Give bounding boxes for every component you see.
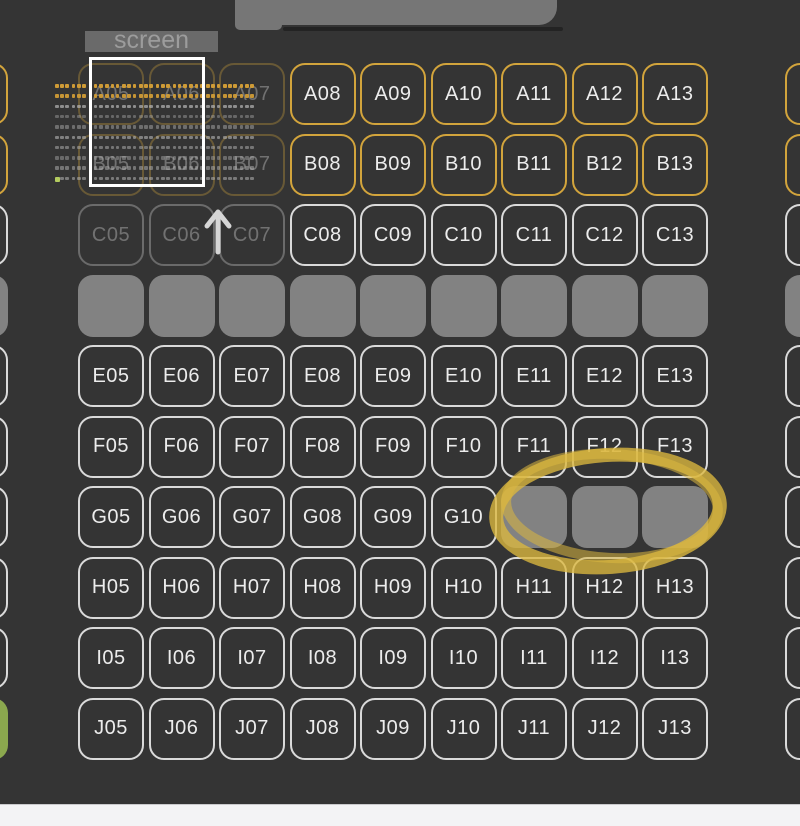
minimap-seat-dot — [217, 105, 221, 109]
top-sheet-tab — [235, 0, 557, 25]
minimap-seat-dot — [55, 84, 59, 88]
seat-G13 — [642, 486, 708, 548]
minimap-seat-dot — [240, 125, 244, 129]
minimap-seat-dot — [211, 125, 215, 129]
seat-E04[interactable] — [0, 345, 8, 407]
minimap-seat-dot — [206, 94, 210, 98]
seat-H09[interactable]: H09 — [360, 557, 426, 619]
seat-H06[interactable]: H06 — [149, 557, 215, 619]
seat-I12[interactable]: I12 — [572, 627, 638, 689]
minimap-seat-dot — [206, 115, 210, 119]
minimap-seat-dot — [77, 177, 81, 181]
minimap-seat-dot — [72, 84, 76, 88]
minimap-seat-dot — [228, 146, 232, 150]
minimap-seat-dot — [60, 136, 64, 140]
minimap-seat-dot — [60, 84, 64, 88]
seat-F06[interactable]: F06 — [149, 416, 215, 478]
minimap-seat-dot — [72, 105, 76, 109]
minimap-seat-dot — [55, 94, 59, 98]
minimap-seat-dot — [55, 125, 59, 129]
seat-A08[interactable]: A08 — [290, 63, 356, 125]
minimap-seat-dot — [223, 146, 227, 150]
minimap-seat-dot — [223, 136, 227, 140]
minimap-seat-dot — [82, 115, 86, 119]
minimap-seat-dot — [217, 166, 221, 170]
minimap-seat-dot — [223, 105, 227, 109]
seat-H05[interactable]: H05 — [78, 557, 144, 619]
minimap-seat-dot — [65, 156, 69, 160]
seat-A13[interactable]: A13 — [642, 63, 708, 125]
minimap-seat-dot — [245, 156, 249, 160]
screen-label-bar: screen — [85, 31, 218, 52]
seat-H13[interactable]: H13 — [642, 557, 708, 619]
seat-A09[interactable]: A09 — [360, 63, 426, 125]
seat-B13[interactable]: B13 — [642, 134, 708, 196]
seat-D07 — [219, 275, 285, 337]
seat-C13[interactable]: C13 — [642, 204, 708, 266]
minimap-seat-dot — [211, 166, 215, 170]
minimap-seat-dot — [233, 105, 237, 109]
minimap-seat-dot — [245, 105, 249, 109]
minimap-seat-dot — [240, 156, 244, 160]
seat-J10[interactable]: J10 — [431, 698, 497, 760]
minimap-seat-dot — [233, 156, 237, 160]
minimap-seat-dot — [65, 94, 69, 98]
minimap-seat-dot — [77, 125, 81, 129]
seat-A10[interactable]: A10 — [431, 63, 497, 125]
minimap-seat-dot — [77, 156, 81, 160]
seat-J05[interactable]: J05 — [78, 698, 144, 760]
seat-I06[interactable]: I06 — [149, 627, 215, 689]
seat-G04[interactable] — [0, 486, 8, 548]
seat-J08[interactable]: J08 — [290, 698, 356, 760]
minimap-seat-dot — [77, 136, 81, 140]
minimap-seat-dot — [228, 136, 232, 140]
minimap-seat-dot — [77, 105, 81, 109]
seat-D14 — [785, 275, 800, 337]
minimap-seat-dot — [72, 94, 76, 98]
minimap-seat-dot — [217, 115, 221, 119]
seat-G07[interactable]: G07 — [219, 486, 285, 548]
seat-E10[interactable]: E10 — [431, 345, 497, 407]
seat-A11[interactable]: A11 — [501, 63, 567, 125]
seat-I09[interactable]: I09 — [360, 627, 426, 689]
minimap-seat-dot — [206, 84, 210, 88]
seat-D06 — [149, 275, 215, 337]
seat-J12[interactable]: J12 — [572, 698, 638, 760]
seat-G12 — [572, 486, 638, 548]
seat-E13[interactable]: E13 — [642, 345, 708, 407]
minimap-seat-dot — [217, 84, 221, 88]
minimap-seat-dot — [206, 105, 210, 109]
scroll-up-arrow-icon — [200, 204, 236, 261]
seat-J09[interactable]: J09 — [360, 698, 426, 760]
seat-F11[interactable]: F11 — [501, 416, 567, 478]
seat-I13[interactable]: I13 — [642, 627, 708, 689]
minimap-seat-dot — [72, 177, 76, 181]
seat-I10[interactable]: I10 — [431, 627, 497, 689]
minimap-seat-dot — [217, 156, 221, 160]
minimap-seat-dot — [211, 115, 215, 119]
minimap-seat-dot — [217, 94, 221, 98]
seat-E14[interactable] — [785, 345, 800, 407]
minimap-seat-dot — [233, 115, 237, 119]
seat-D09 — [360, 275, 426, 337]
minimap-seat-dot — [250, 94, 254, 98]
minimap-seat-dot — [245, 84, 249, 88]
minimap-seat-dot — [60, 94, 64, 98]
minimap-seat-dot — [82, 156, 86, 160]
minimap-seat-dot — [60, 146, 64, 150]
minimap-seat-dot — [65, 146, 69, 150]
seat-E12[interactable]: E12 — [572, 345, 638, 407]
minimap-seat-dot — [72, 156, 76, 160]
seat-C08[interactable]: C08 — [290, 204, 356, 266]
seat-C05[interactable]: C05 — [78, 204, 144, 266]
minimap-seat-dot — [82, 136, 86, 140]
minimap-seat-dot — [82, 146, 86, 150]
minimap-seat-dot — [240, 94, 244, 98]
minimap-seat-dot — [223, 166, 227, 170]
seat-picker-screen: A05A06A07A08A09A10A11A12A13B05B06B07B08B… — [0, 0, 800, 826]
minimap-seat-dot — [233, 177, 237, 181]
minimap-seat-dot — [245, 177, 249, 181]
minimap-seat-dot — [72, 136, 76, 140]
minimap-seat-dot — [240, 115, 244, 119]
top-sheet-shadow — [283, 27, 563, 31]
seat-J13[interactable]: J13 — [642, 698, 708, 760]
seat-D08 — [290, 275, 356, 337]
seat-B10[interactable]: B10 — [431, 134, 497, 196]
seat-F12[interactable]: F12 — [572, 416, 638, 478]
minimap-seat-dot — [77, 146, 81, 150]
seat-J14[interactable] — [785, 698, 800, 760]
minimap-seat-dot — [60, 156, 64, 160]
minimap-seat-dot — [82, 125, 86, 129]
seat-C10[interactable]: C10 — [431, 204, 497, 266]
seat-F04[interactable] — [0, 416, 8, 478]
seat-E05[interactable]: E05 — [78, 345, 144, 407]
minimap-seat-dot — [72, 166, 76, 170]
minimap-seat-dot — [245, 115, 249, 119]
minimap-seat-dot — [228, 94, 232, 98]
minimap-seat-dot — [65, 177, 69, 181]
minimap-seat-dot — [233, 166, 237, 170]
seat-F09[interactable]: F09 — [360, 416, 426, 478]
minimap-seat-dot — [228, 177, 232, 181]
seat-H14[interactable] — [785, 557, 800, 619]
minimap-seat-dot — [250, 146, 254, 150]
minimap-seat-dot — [82, 105, 86, 109]
seat-G09[interactable]: G09 — [360, 486, 426, 548]
seat-B08[interactable]: B08 — [290, 134, 356, 196]
seat-F13[interactable]: F13 — [642, 416, 708, 478]
minimap-viewport[interactable] — [89, 57, 205, 187]
seat-E07[interactable]: E07 — [219, 345, 285, 407]
minimap-seat-dot — [211, 94, 215, 98]
seat-F07[interactable]: F07 — [219, 416, 285, 478]
minimap-seat-dot — [65, 84, 69, 88]
minimap-seat-dot — [250, 125, 254, 129]
minimap-seat-dot — [77, 115, 81, 119]
seat-I04[interactable] — [0, 627, 8, 689]
minimap-seat-dot — [217, 177, 221, 181]
minimap-seat-dot — [65, 115, 69, 119]
minimap-seat-dot — [228, 125, 232, 129]
minimap-seat-dot — [250, 177, 254, 181]
minimap-seat-dot — [211, 146, 215, 150]
minimap-seat-dot — [60, 166, 64, 170]
minimap-seat-dot — [206, 125, 210, 129]
minimap-seat-dot — [211, 177, 215, 181]
minimap-seat-dot — [206, 177, 210, 181]
seat-G06[interactable]: G06 — [149, 486, 215, 548]
seat-J07[interactable]: J07 — [219, 698, 285, 760]
minimap-seat-dot — [206, 156, 210, 160]
minimap-seat-dot — [245, 136, 249, 140]
seat-H07[interactable]: H07 — [219, 557, 285, 619]
minimap-seat-dot — [72, 115, 76, 119]
seat-F14[interactable] — [785, 416, 800, 478]
minimap-seat-dot — [228, 115, 232, 119]
seat-D05 — [78, 275, 144, 337]
seat-C12[interactable]: C12 — [572, 204, 638, 266]
seat-I08[interactable]: I08 — [290, 627, 356, 689]
seat-D10 — [431, 275, 497, 337]
seat-J04[interactable] — [0, 698, 8, 760]
minimap-seat-dot — [77, 84, 81, 88]
minimap-seat-dot — [240, 84, 244, 88]
seat-D11 — [501, 275, 567, 337]
minimap-seat-dot — [245, 125, 249, 129]
minimap-seat-dot — [223, 177, 227, 181]
minimap-seat-dot — [228, 156, 232, 160]
minimap-seat-dot — [211, 84, 215, 88]
minimap-seat-dot — [60, 177, 64, 181]
seat-D13 — [642, 275, 708, 337]
seat-H12[interactable]: H12 — [572, 557, 638, 619]
seat-F05[interactable]: F05 — [78, 416, 144, 478]
minimap-seat-dot — [223, 84, 227, 88]
seat-H11[interactable]: H11 — [501, 557, 567, 619]
minimap-seat-dot — [55, 146, 59, 150]
minimap-seat-dot — [245, 94, 249, 98]
seat-H10[interactable]: H10 — [431, 557, 497, 619]
minimap-seat-dot — [250, 166, 254, 170]
minimap-seat-dot — [72, 125, 76, 129]
seat-E11[interactable]: E11 — [501, 345, 567, 407]
seat-B14[interactable] — [785, 134, 800, 196]
minimap-seat-dot — [240, 136, 244, 140]
minimap-seat-dot — [228, 84, 232, 88]
minimap-seat-dot — [223, 156, 227, 160]
minimap-seat-dot — [240, 105, 244, 109]
seat-F08[interactable]: F08 — [290, 416, 356, 478]
seat-E06[interactable]: E06 — [149, 345, 215, 407]
seat-D12 — [572, 275, 638, 337]
minimap-seat-dot — [240, 166, 244, 170]
seat-G05[interactable]: G05 — [78, 486, 144, 548]
minimap-seat-dot — [206, 136, 210, 140]
minimap-seat-dot — [228, 166, 232, 170]
minimap-seat-dot — [250, 156, 254, 160]
minimap-seat-dot — [82, 177, 86, 181]
seat-E08[interactable]: E08 — [290, 345, 356, 407]
minimap-seat-dot — [55, 105, 59, 109]
seat-G08[interactable]: G08 — [290, 486, 356, 548]
seat-I11[interactable]: I11 — [501, 627, 567, 689]
minimap-seat-dot — [60, 105, 64, 109]
minimap-seat-dot — [223, 94, 227, 98]
seat-B12[interactable]: B12 — [572, 134, 638, 196]
minimap-seat-dot — [233, 125, 237, 129]
minimap-seat-dot — [55, 166, 59, 170]
minimap-seat-dot — [60, 115, 64, 119]
minimap-seat-dot — [245, 166, 249, 170]
seat-C04[interactable] — [0, 204, 8, 266]
minimap-seat-dot — [72, 146, 76, 150]
minimap-seat-dot — [82, 94, 86, 98]
seat-I05[interactable]: I05 — [78, 627, 144, 689]
minimap-seat-dot — [223, 115, 227, 119]
minimap-seat-dot — [65, 166, 69, 170]
minimap-seat-dot — [65, 105, 69, 109]
seat-I14[interactable] — [785, 627, 800, 689]
seat-F10[interactable]: F10 — [431, 416, 497, 478]
minimap-seat-dot — [250, 105, 254, 109]
minimap-seat-dot — [217, 146, 221, 150]
minimap-seat-dot — [77, 166, 81, 170]
seat-B11[interactable]: B11 — [501, 134, 567, 196]
minimap-seat-dot — [217, 125, 221, 129]
seat-C09[interactable]: C09 — [360, 204, 426, 266]
minimap-seat-dot — [240, 146, 244, 150]
minimap-seat-dot — [233, 136, 237, 140]
minimap-seat-dot — [228, 105, 232, 109]
seat-A04[interactable] — [0, 63, 8, 125]
minimap-seat-dot — [60, 125, 64, 129]
minimap-seat-dot — [211, 105, 215, 109]
minimap-seat-dot — [55, 115, 59, 119]
minimap-seat-dot — [211, 136, 215, 140]
seat-E09[interactable]: E09 — [360, 345, 426, 407]
seat-H08[interactable]: H08 — [290, 557, 356, 619]
minimap-seat-dot — [250, 136, 254, 140]
minimap-seat-dot — [250, 84, 254, 88]
seat-B04[interactable] — [0, 134, 8, 196]
screen-label: screen — [114, 30, 189, 51]
minimap-seat-dot — [206, 166, 210, 170]
minimap-seat-dot — [55, 136, 59, 140]
seat-J11[interactable]: J11 — [501, 698, 567, 760]
seat-H04[interactable] — [0, 557, 8, 619]
seat-B09[interactable]: B09 — [360, 134, 426, 196]
minimap-seat-dot — [240, 177, 244, 181]
minimap-seat-dot — [233, 146, 237, 150]
minimap-seat-dot — [65, 125, 69, 129]
seat-G10[interactable]: G10 — [431, 486, 497, 548]
minimap-seat-dot — [245, 146, 249, 150]
seat-I07[interactable]: I07 — [219, 627, 285, 689]
minimap-seat-dot — [82, 166, 86, 170]
minimap-seat-dot — [233, 94, 237, 98]
minimap-seat-dot — [206, 146, 210, 150]
seat-D04 — [0, 275, 8, 337]
seat-G14[interactable] — [785, 486, 800, 548]
seat-A12[interactable]: A12 — [572, 63, 638, 125]
bottom-sheet-edge — [0, 804, 800, 826]
seat-J06[interactable]: J06 — [149, 698, 215, 760]
minimap-seat-dot — [233, 84, 237, 88]
seat-A14[interactable] — [785, 63, 800, 125]
seat-C11[interactable]: C11 — [501, 204, 567, 266]
seat-C14[interactable] — [785, 204, 800, 266]
minimap-seat-dot — [223, 125, 227, 129]
minimap-seat-dot — [211, 156, 215, 160]
minimap-seat-dot — [82, 84, 86, 88]
minimap-seat-dot — [77, 94, 81, 98]
seat-G11 — [501, 486, 567, 548]
minimap-seat-dot — [65, 136, 69, 140]
minimap-seat-dot — [250, 115, 254, 119]
minimap-seat-dot — [217, 136, 221, 140]
minimap-seat-dot — [55, 156, 59, 160]
